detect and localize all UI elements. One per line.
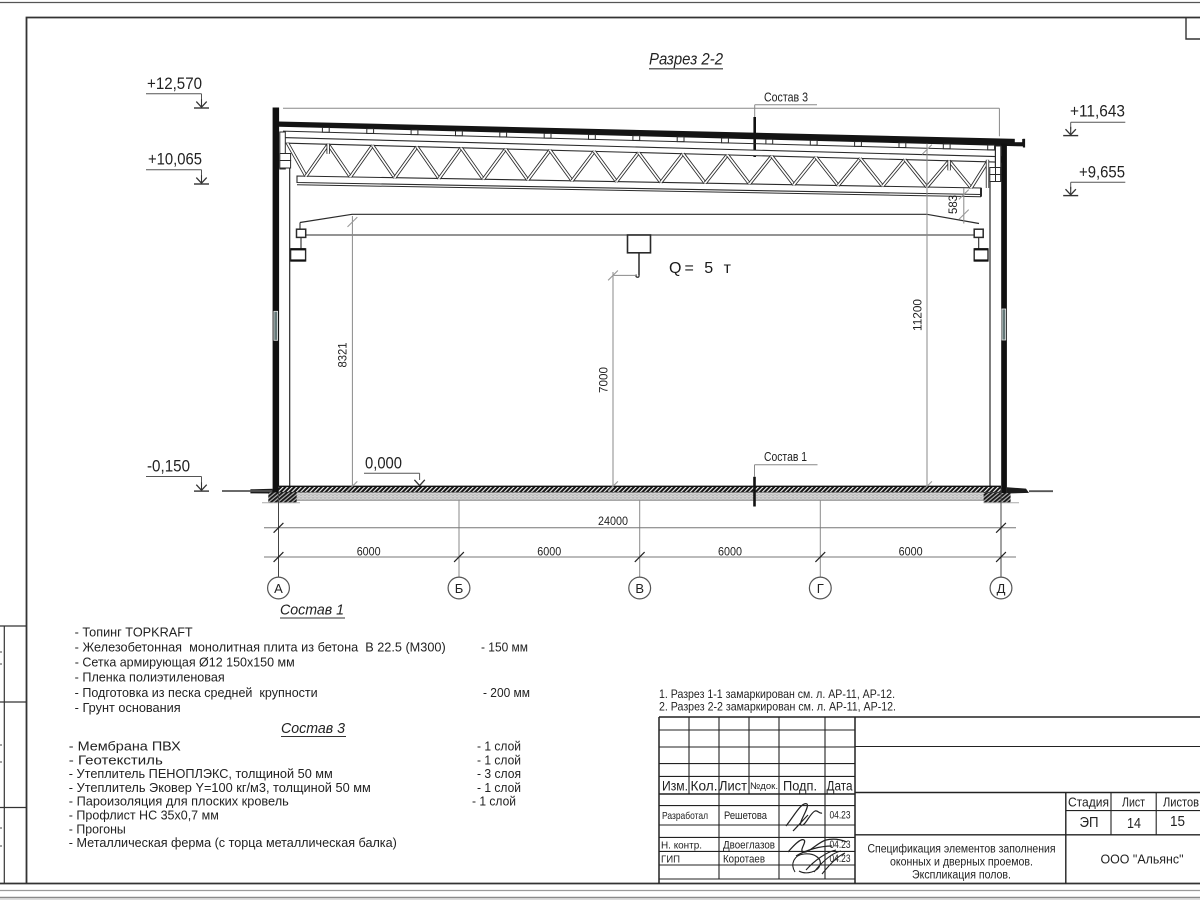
svg-text:- 1 слой: - 1 слой (477, 753, 521, 767)
svg-text:- 1 слой: - 1 слой (477, 781, 521, 795)
svg-text:14: 14 (1127, 816, 1141, 832)
svg-text:Г: Г (817, 581, 824, 596)
svg-text:Двоеглазов: Двоеглазов (723, 840, 775, 852)
svg-text:6000: 6000 (537, 547, 561, 559)
svg-text:Б: Б (455, 581, 464, 596)
svg-text:-0,150: -0,150 (147, 457, 190, 476)
svg-text:В: В (635, 581, 644, 596)
svg-text:Подп.: Подп. (783, 779, 817, 794)
svg-text:04.23: 04.23 (830, 810, 851, 822)
svg-text:- Топинг TOPKRAFT: - Топинг TOPKRAFT (75, 625, 193, 639)
svg-text:Состав 3: Состав 3 (764, 91, 808, 105)
svg-text:Разрез 2-2: Разрез 2-2 (649, 51, 723, 69)
svg-text:04.23: 04.23 (830, 839, 851, 851)
svg-text:Спецификация элементов заполне: Спецификация элементов заполнения (868, 844, 1056, 856)
svg-text:- Железобетонная монолитная п: - Железобетонная монолитная плита из бет… (75, 640, 446, 654)
svg-text:24000: 24000 (598, 516, 628, 528)
svg-text:оконных и дверных проемов.: оконных и дверных проемов. (890, 857, 1033, 869)
svg-text:Лист: Лист (1122, 796, 1145, 810)
svg-text:8321: 8321 (338, 343, 350, 368)
svg-text:Состав 1: Состав 1 (280, 602, 344, 619)
svg-text:- 1 слой: - 1 слой (477, 740, 521, 754)
svg-text:А: А (274, 581, 283, 596)
svg-text:- Профлист НС 35х0,7 мм: - Профлист НС 35х0,7 мм (69, 809, 219, 823)
svg-text:- Геотекстиль: - Геотекстиль (69, 753, 163, 767)
svg-text:+12,570: +12,570 (147, 74, 202, 93)
svg-text:0,000: 0,000 (365, 454, 402, 473)
svg-text:- Сетка армирующая Ø12 150х150: - Сетка армирующая Ø12 150х150 мм (75, 656, 295, 670)
svg-text:- Пленка полиэтиленовая: - Пленка полиэтиленовая (75, 671, 225, 685)
svg-text:- Утеплитель ПЕНОПЛЭКС, толщин: - Утеплитель ПЕНОПЛЭКС, толщиной 50 мм (69, 767, 333, 781)
svg-text:ГИП: ГИП (661, 854, 680, 866)
svg-text:- 150 мм: - 150 мм (481, 640, 528, 654)
svg-text:Изм.: Изм. (662, 779, 688, 794)
svg-text:ООО "Альянс": ООО "Альянс" (1101, 852, 1184, 867)
svg-text:Лист: Лист (719, 779, 747, 794)
svg-text:- Металлическая ферма (с торца: - Металлическая ферма (с торца металличе… (69, 836, 397, 850)
svg-text:Решетова: Решетова (724, 810, 768, 822)
svg-text:Разработал: Разработал (662, 810, 708, 822)
svg-text:583: 583 (948, 195, 960, 214)
svg-text:Дата: Дата (827, 779, 853, 794)
svg-text:- Пароизоляция для плоских кро: - Пароизоляция для плоских кровель (69, 795, 289, 809)
svg-text:+9,655: +9,655 (1079, 163, 1125, 182)
svg-text:15: 15 (1170, 814, 1185, 830)
svg-text:Стадия: Стадия (1068, 796, 1109, 810)
svg-text:Состав 3: Состав 3 (281, 720, 346, 737)
svg-text:6000: 6000 (357, 547, 381, 559)
svg-text:Листов: Листов (1163, 796, 1199, 810)
svg-text:- Прогоны: - Прогоны (69, 822, 126, 836)
svg-text:Н. контр.: Н. контр. (661, 840, 702, 852)
svg-text:- Мембрана ПВХ: - Мембрана ПВХ (69, 740, 182, 754)
svg-text:11200: 11200 (913, 299, 925, 331)
svg-text:- 3 слоя: - 3 слоя (477, 767, 521, 781)
svg-text:- Подготовка из песка средней: - Подготовка из песка средней крупности (75, 686, 318, 700)
svg-text:№док.: №док. (750, 781, 778, 792)
svg-text:Д: Д (997, 581, 1006, 596)
svg-text:- 1 слой: - 1 слой (472, 795, 516, 809)
svg-text:6000: 6000 (899, 547, 923, 559)
svg-text:Состав 1: Состав 1 (764, 450, 807, 464)
svg-text:7000: 7000 (599, 367, 611, 393)
svg-text:- 200 мм: - 200 мм (483, 686, 530, 700)
svg-text:- Утеплитель Эковер Y=100 кг/м: - Утеплитель Эковер Y=100 кг/м3, толщино… (69, 781, 371, 795)
svg-text:+10,065: +10,065 (148, 150, 202, 169)
svg-text:6000: 6000 (718, 547, 742, 559)
svg-text:+11,643: +11,643 (1070, 102, 1125, 121)
svg-text:Коротаев: Коротаев (723, 854, 765, 866)
svg-text:- Грунт основания: - Грунт основания (75, 701, 181, 715)
svg-text:ЭП: ЭП (1080, 815, 1099, 831)
svg-text:Экспликация полов.: Экспликация полов. (912, 870, 1011, 882)
svg-text:Кол.: Кол. (691, 779, 718, 794)
svg-text:2. Разрез 2-2 замаркирован см.: 2. Разрез 2-2 замаркирован см. л. АР-11,… (659, 700, 896, 714)
